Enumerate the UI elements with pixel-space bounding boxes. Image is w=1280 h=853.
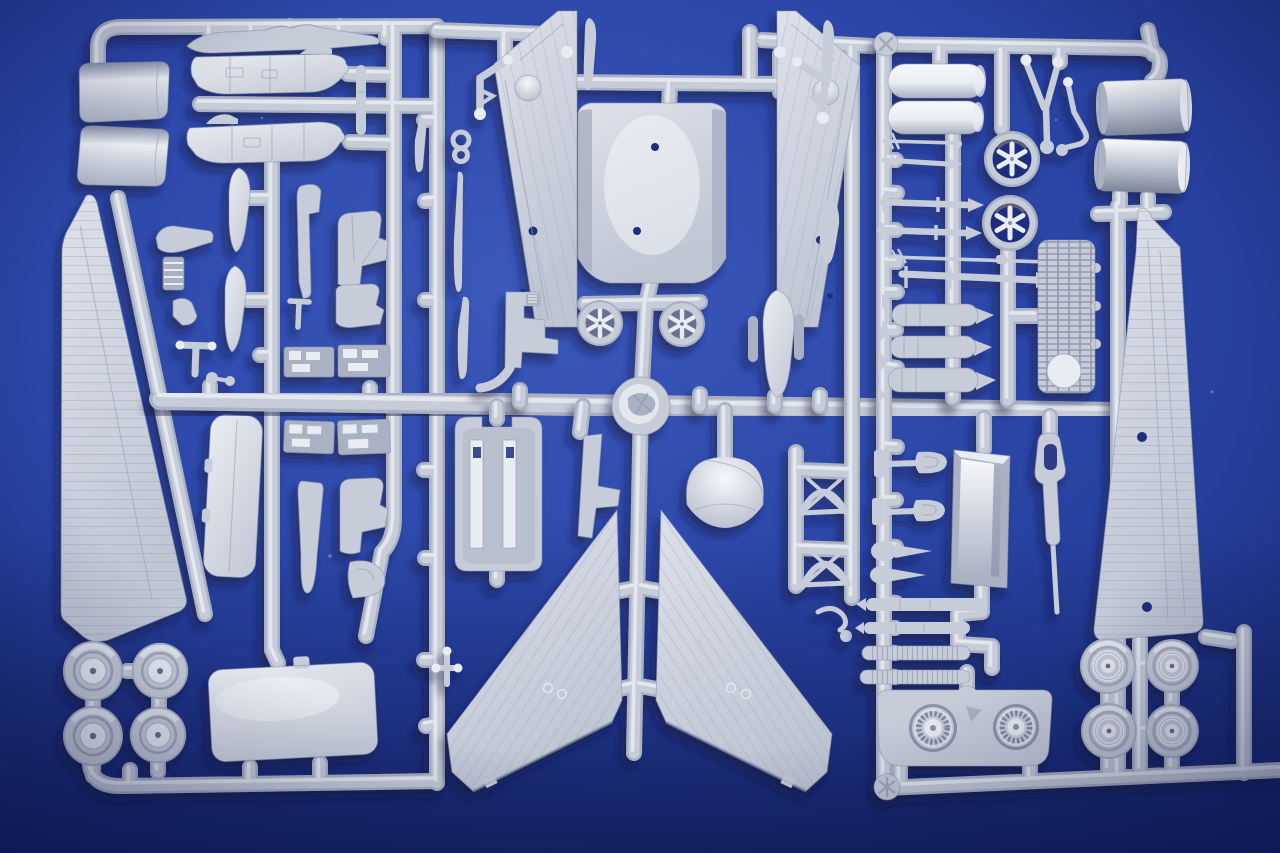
vignette-overlay — [0, 0, 1280, 853]
sprue-photo — [0, 0, 1280, 853]
photo-stage — [0, 0, 1280, 853]
